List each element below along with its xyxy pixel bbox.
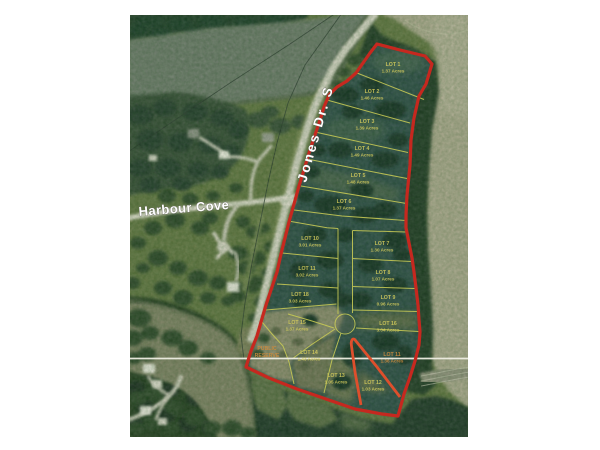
svg-text:LOT 14: LOT 14 — [300, 350, 318, 356]
svg-text:1.39 Acres: 1.39 Acres — [356, 126, 379, 131]
svg-text:LOT 5: LOT 5 — [351, 173, 366, 179]
svg-text:LOT 11: LOT 11 — [383, 352, 400, 358]
svg-text:1.46 Acres: 1.46 Acres — [361, 96, 384, 101]
svg-text:1.43 Acres: 1.43 Acres — [298, 357, 321, 362]
svg-text:LOT 16: LOT 16 — [379, 321, 397, 327]
svg-text:LOT 2: LOT 2 — [365, 89, 380, 95]
svg-text:3.03 Acres: 3.03 Acres — [289, 299, 312, 304]
svg-text:3.04 Acres: 3.04 Acres — [377, 328, 400, 333]
svg-text:1.49 Acres: 1.49 Acres — [351, 153, 374, 158]
svg-text:LOT 15: LOT 15 — [288, 320, 306, 326]
svg-text:LOT 7: LOT 7 — [375, 241, 390, 247]
svg-text:1.37 Acres: 1.37 Acres — [382, 69, 405, 74]
svg-text:LOT 6: LOT 6 — [337, 199, 352, 205]
svg-text:LOT 1: LOT 1 — [386, 62, 401, 68]
svg-text:LOT 13: LOT 13 — [327, 373, 345, 379]
svg-text:LOT 8: LOT 8 — [376, 270, 391, 276]
svg-text:0.96 Acres: 0.96 Acres — [377, 302, 400, 307]
svg-text:1.05 Acres: 1.05 Acres — [325, 380, 348, 385]
svg-text:1.30 Acres: 1.30 Acres — [371, 248, 394, 253]
svg-text:PUBLIC: PUBLIC — [257, 346, 277, 352]
svg-text:LOT 10: LOT 10 — [301, 236, 319, 242]
svg-text:LOT 9: LOT 9 — [381, 295, 396, 301]
svg-text:1.37 Acres: 1.37 Acres — [286, 327, 309, 332]
svg-text:1.03 Acres: 1.03 Acres — [362, 387, 385, 392]
svg-text:LOT 3: LOT 3 — [360, 119, 375, 125]
svg-text:1.37 Acres: 1.37 Acres — [333, 206, 356, 211]
svg-text:RESERVE: RESERVE — [255, 353, 280, 359]
svg-text:1.48 Acres: 1.48 Acres — [347, 180, 370, 185]
svg-text:LOT 4: LOT 4 — [355, 146, 370, 152]
svg-text:LOT 18: LOT 18 — [291, 292, 309, 298]
svg-text:LOT 11: LOT 11 — [298, 266, 315, 272]
svg-text:1.36 Acres: 1.36 Acres — [381, 359, 404, 364]
svg-text:3.02 Acres: 3.02 Acres — [296, 273, 319, 278]
svg-text:1.07 Acres: 1.07 Acres — [372, 277, 395, 282]
svg-text:LOT 12: LOT 12 — [364, 380, 382, 386]
svg-text:3.01 Acres: 3.01 Acres — [299, 243, 322, 248]
